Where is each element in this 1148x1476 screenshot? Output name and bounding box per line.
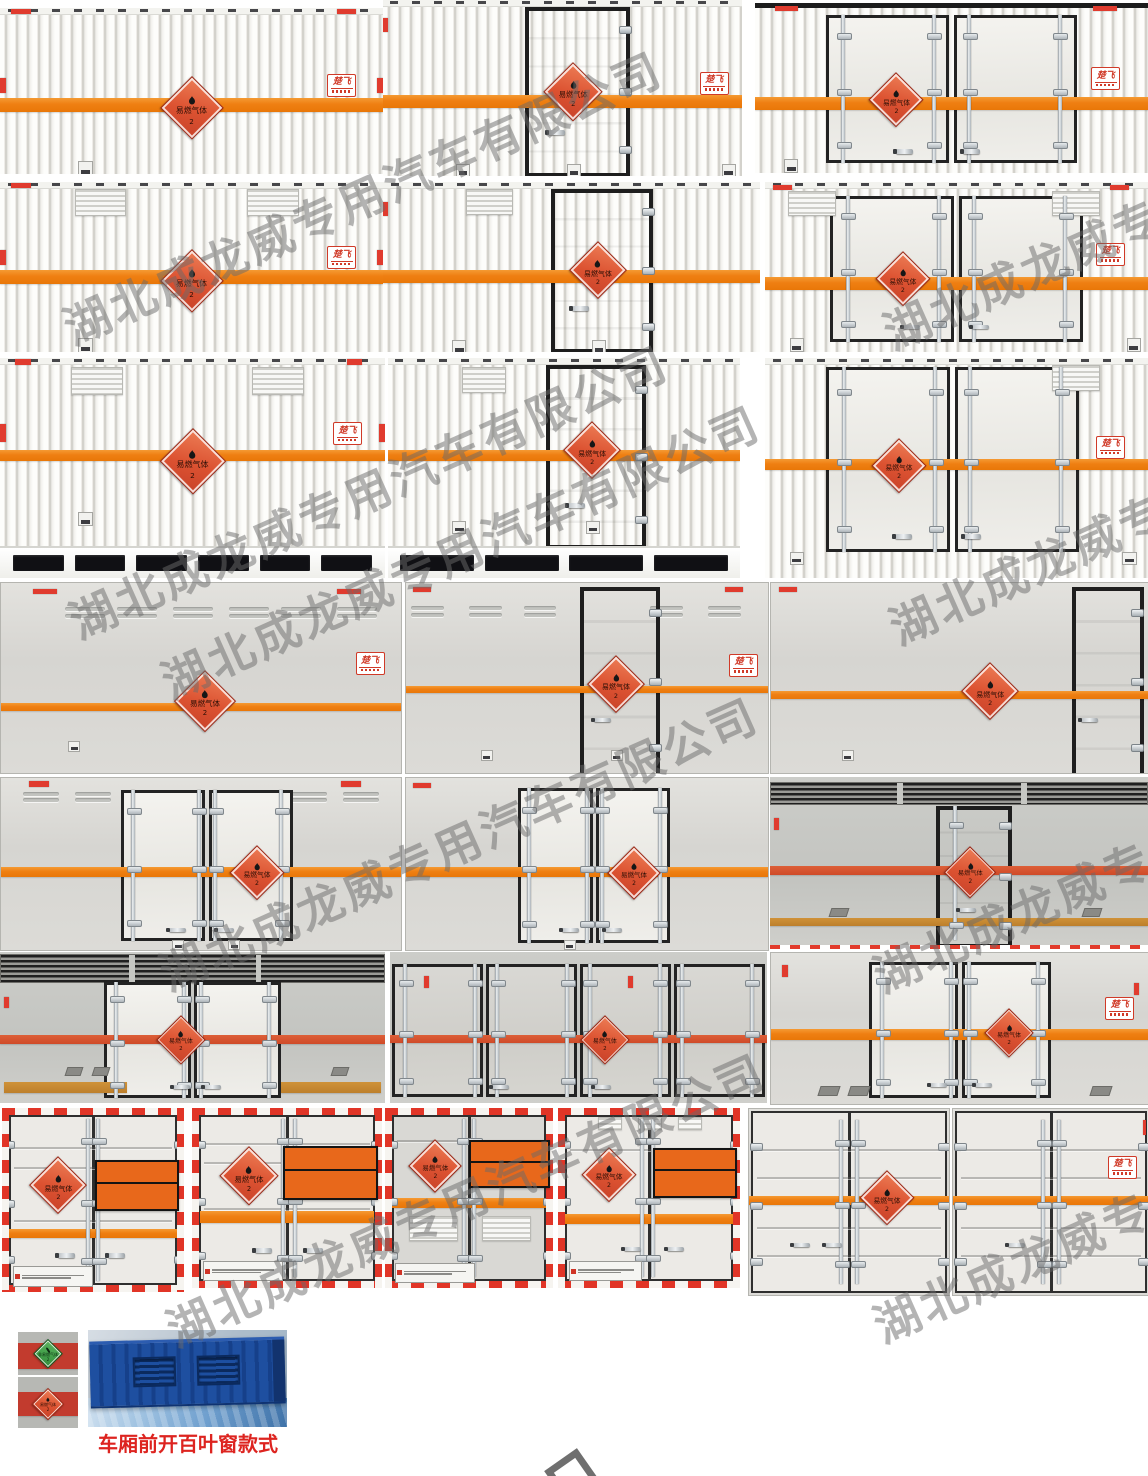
rod-hinge [929,526,944,533]
rod-hinge [837,459,852,466]
plate-text-line [404,1273,452,1275]
vent-oval [337,604,377,621]
rod-hinge [676,1078,691,1085]
placard-label: 易燃气体 [883,100,910,107]
certification-tag [452,340,466,352]
brand-divider [331,261,353,262]
rod-hinge [837,526,852,533]
rod-hinge [932,213,947,220]
vent-louver [466,189,513,215]
vent-oval [291,790,327,804]
rod-hinge [192,866,207,873]
handle-pin [55,1253,59,1258]
placard-flammable-gas: 易燃气体2 [873,440,925,492]
brand-subtext-mark [1113,1172,1132,1175]
placard-class-number: 2 [571,101,575,108]
handle-pin [969,325,973,330]
hazard-tape-left [2,1108,9,1292]
vent-oval [281,604,321,621]
certification-tag [172,940,184,950]
vent-louver [71,367,123,395]
door-hinge [619,146,632,154]
hazard-tape-left [192,1108,199,1288]
door-handle [594,718,611,723]
door-hinge [1138,1258,1148,1266]
rod-hinge [1053,33,1068,40]
placard-label: 易燃气体 [886,465,913,472]
placard-flammable-gas: 易燃气体2 [176,672,234,730]
door-rib [961,1255,1142,1257]
rod-hinge [676,1031,691,1038]
van-panel-rear-doors-1: 易燃气体2 [0,777,402,951]
door-handle [825,1243,842,1248]
roof-rail [0,358,385,365]
door-hinge [999,822,1012,830]
tag-marking [483,756,490,759]
placard-class-number: 2 [885,1207,889,1213]
metal-step-plate [847,1086,870,1096]
rail-fasteners [8,9,376,12]
door-hinge [999,873,1012,881]
tag-marking [81,520,90,524]
vent-louver [598,1117,622,1130]
louver-gap [897,783,903,804]
plate-text-line [212,1272,260,1274]
skirt-slot [13,555,64,570]
red-reflector [0,424,6,442]
rear-doors-small-3: 易燃气体2 [385,1108,553,1288]
door-hinge [750,1258,763,1266]
plate-text-line [404,1271,466,1273]
rod-hinge [1053,89,1068,96]
rail-fasteners [390,1,735,4]
side-guard-skirt [388,546,740,578]
vent-slot [75,792,111,796]
rod-hinge [927,89,942,96]
door-rib [757,1227,941,1229]
skirt-slot [321,555,372,570]
rod-hinge [127,808,142,815]
rod-hinge [192,920,207,927]
brand-divider [1100,257,1122,258]
brand-logo-text: 楚飞 [1102,440,1120,449]
van-panel-rear-doors-2: 易燃气体2 [405,777,769,951]
rod-hinge [1031,1030,1046,1037]
plate-logo-mark [205,1269,210,1274]
vent-slot [411,606,444,610]
metal-step-plate [817,1086,840,1096]
handle-pin [591,718,595,723]
certification-tag [842,750,854,761]
brand-subtext-mark [338,439,357,442]
vent-slot [65,614,105,618]
vent-slot [469,606,502,610]
door-hinge [1131,609,1144,617]
handle-pin [303,1248,307,1253]
placard-class-number: 2 [596,279,600,285]
door-hinge [642,267,655,275]
un-number-panel [283,1146,378,1200]
placard-label: 易燃气体 [234,1176,263,1184]
placard-label: 易燃气体 [584,270,612,278]
rod-hinge [262,996,277,1003]
handle-pin [489,1085,493,1090]
handle-pin [105,1253,109,1258]
van-panel-side-1: 易燃气体2楚飞 [0,582,402,774]
rod-hinge [963,142,978,149]
rod-hinge [968,213,983,220]
vent-louver [788,191,836,217]
handle-pin [1078,718,1082,723]
info-plate [13,1266,93,1287]
red-reflector [773,185,792,190]
rod-hinge [1053,142,1068,149]
rod-hinge [262,1040,277,1047]
certification-tag [1122,552,1137,565]
rod-hinge [841,213,856,220]
door-hinge [619,88,632,96]
rod-hinge [837,89,852,96]
caption-louver-style: 车厢前开百叶窗款式 [84,1428,292,1457]
vent-louver [482,1216,531,1241]
door-handle [667,1247,684,1252]
red-reflector [29,781,49,786]
certification-tag [790,552,804,565]
info-plate [569,1261,642,1281]
handle-pin [170,1085,174,1090]
info-plate [395,1263,475,1283]
certification-tag [611,750,623,761]
door-hinge [649,609,662,617]
brand-divider [331,88,353,89]
brand-subtext-mark [332,90,351,93]
placard-class-number: 2 [590,459,594,465]
rail-fasteners [773,359,1141,362]
van-rear-doors-panel: 易燃气体2楚飞 [770,952,1148,1105]
rod-hinge [944,978,959,985]
placard-class-number: 2 [607,1183,611,1189]
red-reflector [782,965,787,977]
handle-pin [201,1085,205,1090]
certification-tag [592,340,606,352]
placard-flammable-gas: 易燃气体2 [877,253,929,305]
van-side-corrugated-1: 易燃气体2楚飞 [0,8,383,174]
tag-marking [792,346,800,350]
red-reflector [377,78,383,93]
door-handle [58,1253,75,1258]
door-hinge [1131,678,1144,686]
rear-doors-small-2: 易燃气体2 [192,1108,382,1288]
brand-sticker: 楚飞 [333,422,362,445]
door-rib [757,1177,941,1179]
rod-hinge [646,1138,661,1145]
placard-flammable-gas: 易燃气体2 [571,243,625,297]
vent-slot [343,798,379,802]
handle-pin [252,1248,256,1253]
rod-hinge [1052,1202,1067,1209]
red-reflector [1110,185,1129,190]
handle-pin [1005,1243,1009,1248]
rod-hinge [837,142,852,149]
rod-hinge [876,1079,891,1086]
rod-hinge [561,1031,576,1038]
rail-fasteners [8,359,378,362]
brand-logo-text: 楚飞 [1111,1001,1129,1010]
plate-text-line [578,1269,634,1271]
red-reflector [413,783,431,788]
brand-subtext-mark [734,670,753,673]
tag-marking [792,559,800,563]
rear-doors-ribbed-1: 易燃气体2 [748,1108,950,1296]
van-panel-side-door-1: 易燃气体2楚飞 [405,582,769,774]
hazard-tape-top [192,1108,382,1115]
placard-flammable-gas: 易燃气体2 [946,848,994,896]
brand-subtext-mark [1110,1013,1129,1016]
brand-subtext-mark [1101,452,1120,455]
door-rib [961,1227,1142,1229]
certification-tag [456,164,470,176]
handle-pin [559,928,563,933]
rod-hinge [841,321,856,328]
placard-class-number: 2 [179,1047,183,1053]
door-handle [568,503,585,508]
door-handle [930,1083,947,1088]
brand-subtext-mark [705,88,724,91]
brand-logo-text: 楚飞 [735,658,753,667]
red-reflector [11,183,30,188]
door-hinge [1138,1202,1148,1210]
placard-label: 易燃气体 [997,1033,1021,1040]
placard-label: 易燃气体 [602,683,630,691]
brand-sticker: 楚飞 [1096,243,1125,266]
un-number-panel [95,1160,179,1212]
vent-slot [708,613,741,617]
rod-hinge [468,1078,483,1085]
placard-flammable-gas: 易燃气体2 [589,657,643,711]
rail-fasteners [391,183,753,186]
blue-container-body [89,1336,286,1408]
rod-hinge [927,142,942,149]
door-hinge [954,1202,967,1210]
placard-class-number: 2 [901,288,905,294]
vent-slot [281,614,321,618]
handle-pin [591,1085,595,1090]
plate-text-line [22,1277,71,1279]
placard-flammable-gas: 易燃气体2 [410,1141,460,1191]
rod-hinge [876,1030,891,1037]
tag-marking [566,945,573,948]
placard-class-number: 2 [189,118,194,125]
handle-pin [569,306,573,311]
placard-flammable-gas: 易燃气体2 [583,1149,635,1201]
red-reflector [1143,1120,1146,1135]
placard-label: 易燃气体 [422,1165,448,1172]
rod-hinge [209,808,224,815]
rod-hinge [192,808,207,815]
rod-hinge [580,807,595,814]
vent-louver [678,1117,702,1130]
brand-logo-text: 楚飞 [361,657,379,666]
rod-hinge [745,980,760,987]
certification-tag [78,161,93,174]
brand-sticker: 楚飞 [1091,67,1120,90]
door-handle [492,1085,509,1090]
rod-hinge [835,1140,850,1147]
rod-hinge [676,980,691,987]
tag-marking [613,756,620,759]
vent-oval [524,604,557,619]
rod-hinge [964,389,979,396]
rod-hinge [653,1031,668,1038]
brand-subtext-mark [332,263,351,266]
rod-hinge [288,1138,303,1145]
vent-oval [75,790,111,804]
rod-hinge [522,921,537,928]
tag-marking [844,756,851,759]
metal-step-plate [1089,1086,1112,1096]
placard-flammable-gas: 易燃气体2 [162,251,222,311]
placard-class-number: 2 [56,1194,60,1200]
handle-pin [602,928,606,933]
tag-marking [570,171,578,175]
skirt-slot [136,555,187,570]
rod-hinge [1052,1261,1067,1268]
plate-logo-mark [397,1270,402,1275]
brand-divider [733,668,755,669]
certification-tag [1127,338,1141,352]
rod-hinge [177,996,192,1003]
rod-hinge [1055,459,1070,466]
rod-hinge [92,1138,107,1145]
rod-hinge [851,1140,866,1147]
vent-slot [469,613,502,617]
reflective-stripe [565,1214,732,1224]
rod-hinge [399,1031,414,1038]
vent-slot [117,614,157,618]
panel-divider-line [97,1182,177,1184]
red-reflector [725,587,743,593]
tag-marking [231,945,238,948]
un-number-panel [653,1148,737,1199]
rod-hinge [1031,978,1046,985]
rod-hinge [522,807,537,814]
rod-hinge [1059,321,1074,328]
placard-class-number: 2 [968,880,972,886]
certification-tag [722,164,736,176]
rod-hinge [468,1255,483,1262]
rod-hinge [468,1031,483,1038]
brand-subtext-mark [1101,259,1120,262]
rod-hinge [110,1082,125,1089]
rear-doors-small-4: 易燃气体2 [558,1108,740,1288]
rod-hinge [1059,269,1074,276]
placard-label: 易燃气体 [976,691,1004,699]
tag-marking [589,528,597,532]
placard-class-number: 2 [47,1358,50,1362]
vent-louver [75,189,127,217]
vent-slot [291,792,327,796]
brand-logo-text: 楚飞 [333,251,351,260]
watermark-fragment [544,1448,600,1476]
van-rear-louver-door-1: 易燃气体2 [770,777,1148,949]
red-reflector [33,589,57,595]
placard-flammable-gas: 易燃气体2 [221,1148,277,1204]
red-reflector [1134,983,1139,995]
rod-hinge [876,978,891,985]
tag-marking [1129,346,1137,350]
vent-louver [252,367,304,395]
placard-label: 易燃气体 [176,461,208,470]
skirt-slot [654,555,728,570]
rod-hinge [944,1030,959,1037]
rod-hinge [399,1078,414,1085]
vent-slot [524,613,557,617]
placard-flammable-gas: 易燃气体2 [963,664,1017,718]
rod-hinge [522,866,537,873]
door-hinge [750,1202,763,1210]
tag-marking [455,528,463,532]
red-reflector [1093,6,1117,11]
rod-hinge [963,33,978,40]
rod-hinge [491,980,506,987]
vent-slot [23,792,59,796]
skirt-slot [400,555,474,570]
door-hinge [1138,1143,1148,1151]
rod-hinge [841,269,856,276]
vent-oval [469,604,502,619]
certification-tag [784,159,798,173]
red-reflector [379,424,385,442]
red-reflector [413,587,431,593]
vent-slot [337,607,377,611]
placard-flammable-gas: 易燃气体2 [162,78,222,138]
vent-slot [173,607,213,611]
door-hinge [954,1143,967,1151]
plate-text-line [22,1275,84,1277]
reflective-stripe [771,1029,1148,1040]
van-side-door-corrugated-2: 易燃气体2 [383,182,760,352]
certification-tag [452,521,466,534]
certification-tag [567,164,581,176]
metal-step-plate [1082,908,1103,917]
plate-logo-mark [15,1274,20,1279]
skirt-slot [260,555,311,570]
rod-hinge [963,978,978,985]
rod-hinge [927,33,942,40]
handle-pin [960,149,964,154]
certification-tag [564,940,576,950]
brand-divider [1095,82,1117,83]
red-reflector [779,587,798,593]
brand-logo-text: 楚飞 [333,78,351,87]
certification-tag [586,521,600,534]
blue-container-photo [88,1330,287,1427]
placard-label: 易燃气体 [44,1185,72,1193]
handle-pin [565,503,569,508]
red-reflector [774,818,779,830]
vent-oval [708,604,741,619]
rod-hinge [209,866,224,873]
reflective-stripe [765,459,1148,470]
skirt-slot [198,555,249,570]
rod-hinge [932,321,947,328]
red-reflector [4,997,9,1008]
handle-pin [956,908,960,913]
van-side-corrugated-2: 易燃气体2楚飞 [0,182,383,352]
tag-marking [81,170,90,174]
reflective-stripe [755,97,1148,110]
placard-label: 易燃气体 [578,450,606,458]
